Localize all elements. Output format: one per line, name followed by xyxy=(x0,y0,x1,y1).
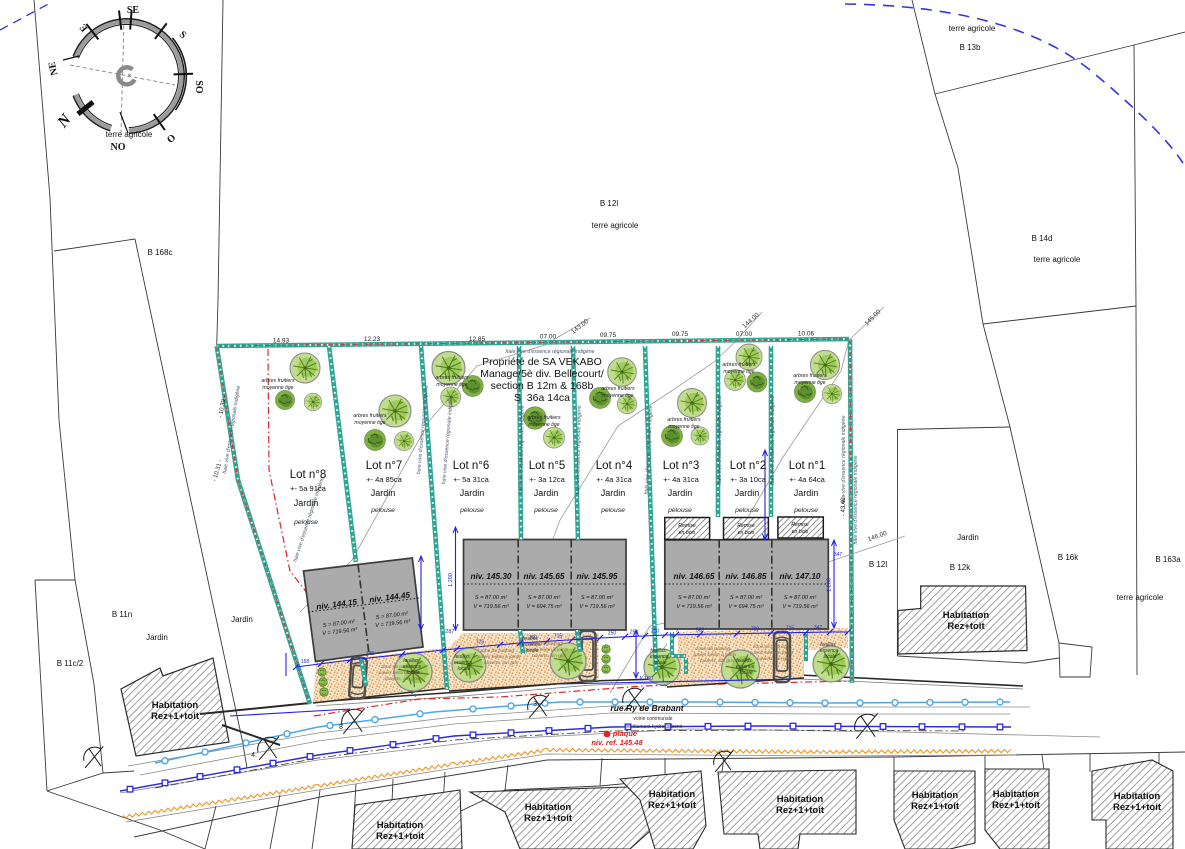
svg-text:S = 87.00 m²: S = 87.00 m² xyxy=(678,595,711,601)
svg-text:1.180: 1.180 xyxy=(639,676,653,682)
svg-text:B 11n: B 11n xyxy=(112,610,132,619)
svg-text:pelouse: pelouse xyxy=(734,507,759,514)
svg-text:V = 694.75 m³: V = 694.75 m³ xyxy=(728,604,763,610)
svg-text:niv. 145.65: niv. 145.65 xyxy=(524,572,565,581)
svg-text:zone de parking: zone de parking xyxy=(752,644,787,650)
svg-text:Jardin: Jardin xyxy=(668,488,693,498)
svg-text:SO: SO xyxy=(193,80,204,94)
svg-text:+- 4a 31ca: +- 4a 31ca xyxy=(596,475,632,484)
svg-text:V = 694.75 m³: V = 694.75 m³ xyxy=(526,604,561,610)
svg-text:Propriété de SA VEKABO: Propriété de SA VEKABO xyxy=(482,356,602,368)
svg-text:580: 580 xyxy=(696,627,705,633)
svg-text:haie vive d'essence régionale: haie vive d'essence régionale indigène xyxy=(717,395,723,484)
svg-text:moyenne tige: moyenne tige xyxy=(436,382,467,388)
svg-text:moyenne tige: moyenne tige xyxy=(723,369,754,375)
svg-text:725: 725 xyxy=(476,640,485,646)
svg-text:Habitation: Habitation xyxy=(912,790,959,801)
svg-text:Lot n°7: Lot n°7 xyxy=(366,460,403,472)
svg-text:Remise: Remise xyxy=(791,522,809,528)
svg-text:Remise: Remise xyxy=(737,523,755,529)
svg-text:arbres fruitiers: arbres fruitiers xyxy=(601,386,635,392)
svg-text:B 16k: B 16k xyxy=(1058,553,1079,562)
svg-text:moyenne tige: moyenne tige xyxy=(354,420,385,426)
svg-text:niv. 146.65: niv. 146.65 xyxy=(674,572,715,581)
svg-text:Habitation: Habitation xyxy=(152,700,199,711)
svg-text:pavés béton à joints: pavés béton à joints xyxy=(750,650,794,656)
svg-text:locale: locale xyxy=(525,648,538,654)
svg-text:arbres fruitiers: arbres fruitiers xyxy=(722,362,756,368)
svg-text:Jardin: Jardin xyxy=(601,488,626,498)
svg-text:Rez+1+toit: Rez+1+toit xyxy=(376,831,425,842)
svg-text:B 13b: B 13b xyxy=(960,43,981,52)
svg-text:pelouse: pelouse xyxy=(600,507,625,514)
svg-text:zone de parking: zone de parking xyxy=(695,646,730,652)
svg-text:Jardin: Jardin xyxy=(371,488,396,498)
svg-text:Lot n°4: Lot n°4 xyxy=(596,460,633,472)
svg-text:Rez+1+toit: Rez+1+toit xyxy=(776,805,825,816)
svg-text:S = 87.00 m²: S = 87.00 m² xyxy=(528,595,561,601)
svg-text:Jardin: Jardin xyxy=(146,633,168,642)
svg-text:S = 87.00 m²: S = 87.00 m² xyxy=(730,595,763,601)
svg-text:plaque: plaque xyxy=(612,729,637,738)
svg-text:moyenne tige: moyenne tige xyxy=(528,422,559,428)
svg-text:S = 87.00 m²: S = 87.00 m² xyxy=(581,595,614,601)
svg-text:B 11c/2: B 11c/2 xyxy=(57,659,84,668)
svg-text:zone de parking: zone de parking xyxy=(479,648,514,654)
svg-text:347: 347 xyxy=(834,552,843,558)
svg-text:niv. 145.95: niv. 145.95 xyxy=(577,572,618,581)
svg-text:arbres fruitiers: arbres fruitiers xyxy=(527,415,561,421)
svg-text:moyenne tige: moyenne tige xyxy=(262,385,293,391)
svg-text:voirie communale: voirie communale xyxy=(633,716,672,722)
svg-text:niv. 146.85: niv. 146.85 xyxy=(726,572,767,581)
svg-text:V = 719.56 m³: V = 719.56 m³ xyxy=(579,604,614,610)
svg-text:Rez+toit: Rez+toit xyxy=(947,621,985,632)
svg-text:700: 700 xyxy=(751,626,760,632)
svg-text:Remise: Remise xyxy=(678,523,696,529)
svg-text:ouverts, ton gris: ouverts, ton gris xyxy=(385,676,420,682)
svg-text:Rez+1+toit: Rez+1+toit xyxy=(524,813,573,824)
svg-text:S 36a 14ca: S 36a 14ca xyxy=(514,392,570,404)
svg-text:haie vive d'essence régionale: haie vive d'essence régionale indigène xyxy=(853,455,859,544)
svg-text:- 43.40 -: - 43.40 - xyxy=(841,494,847,516)
svg-text:arbres fruitiers: arbres fruitiers xyxy=(793,373,827,379)
svg-text:B 14d: B 14d xyxy=(1032,234,1053,243)
svg-text:Jardin: Jardin xyxy=(534,488,559,498)
svg-text:pavés béton à joints: pavés béton à joints xyxy=(693,652,737,658)
svg-text:terre agricole: terre agricole xyxy=(106,130,153,139)
svg-text:12.23: 12.23 xyxy=(364,336,381,343)
svg-text:section B 12m & 168b: section B 12m & 168b xyxy=(491,380,594,392)
svg-text:V = 719.56 m³: V = 719.56 m³ xyxy=(473,604,508,610)
svg-text:en bois: en bois xyxy=(792,529,809,535)
svg-text:pelouse: pelouse xyxy=(667,507,692,514)
svg-text:Jardin: Jardin xyxy=(294,498,319,508)
svg-text:S = 87.00 m²: S = 87.00 m² xyxy=(784,595,817,601)
svg-text:347: 347 xyxy=(814,625,823,631)
svg-text:en bois: en bois xyxy=(738,530,755,536)
svg-text:Lot n°1: Lot n°1 xyxy=(789,460,826,472)
svg-text:280: 280 xyxy=(651,628,660,634)
svg-text:795: 795 xyxy=(366,651,375,657)
svg-text:09.75: 09.75 xyxy=(600,332,617,339)
svg-text:pavés béton à joints: pavés béton à joints xyxy=(477,654,521,660)
svg-text:Lot n°5: Lot n°5 xyxy=(529,460,566,472)
svg-text:Habitation: Habitation xyxy=(649,789,696,800)
svg-text:+- 4a 85ca: +- 4a 85ca xyxy=(366,475,402,484)
svg-text:ouverts, ton gris: ouverts, ton gris xyxy=(757,656,792,662)
svg-text:Jardin: Jardin xyxy=(460,488,485,498)
svg-text:+- 5a 31ca: +- 5a 31ca xyxy=(453,475,489,484)
svg-text:07.00: 07.00 xyxy=(736,331,753,338)
svg-text:1.200: 1.200 xyxy=(448,573,454,587)
svg-text:NO: NO xyxy=(111,142,126,153)
svg-text:ouverts, ton gris: ouverts, ton gris xyxy=(700,658,735,664)
svg-text:+- 5a 91ca: +- 5a 91ca xyxy=(290,484,326,493)
svg-text:8: 8 xyxy=(339,724,343,731)
svg-text:arbres fruitiers: arbres fruitiers xyxy=(261,378,295,384)
svg-text:locale: locale xyxy=(823,654,836,660)
svg-text:Jardin: Jardin xyxy=(794,488,819,498)
svg-text:B 12l: B 12l xyxy=(600,199,618,208)
svg-text:B 12k: B 12k xyxy=(950,563,971,572)
svg-text:10.06: 10.06 xyxy=(798,331,815,338)
svg-text:Lot n°2: Lot n°2 xyxy=(730,460,767,472)
svg-text:pelouse: pelouse xyxy=(533,507,558,514)
svg-text:1.200: 1.200 xyxy=(827,578,833,592)
svg-text:Habitation: Habitation xyxy=(377,820,424,831)
svg-text:B 12l: B 12l xyxy=(869,560,887,569)
svg-text:moyenne tige: moyenne tige xyxy=(602,393,633,399)
svg-text:158: 158 xyxy=(301,659,310,665)
svg-text:Jardin: Jardin xyxy=(735,488,760,498)
svg-text:Rez+1+toit: Rez+1+toit xyxy=(992,800,1041,811)
svg-text:Jardin: Jardin xyxy=(231,615,253,624)
svg-text:Rez+1+toit: Rez+1+toit xyxy=(648,800,697,811)
svg-text:250: 250 xyxy=(608,630,617,636)
svg-text:Manage/5è div. Bellecourt/: Manage/5è div. Bellecourt/ xyxy=(480,368,604,380)
svg-text:Rez+1+toit: Rez+1+toit xyxy=(911,801,960,812)
svg-text:terre agricole: terre agricole xyxy=(592,221,639,230)
svg-text:terre agricole: terre agricole xyxy=(1117,593,1164,602)
svg-text:en bois: en bois xyxy=(679,530,696,536)
svg-text:niv. 147.10: niv. 147.10 xyxy=(780,572,821,581)
svg-text:haie vive d'essence régionale: haie vive d'essence régionale indigène xyxy=(770,395,776,484)
svg-text:V = 719.56 m³: V = 719.56 m³ xyxy=(676,604,711,610)
svg-text:09.75: 09.75 xyxy=(672,331,689,338)
svg-text:arbres fruitiers: arbres fruitiers xyxy=(353,413,387,419)
svg-text:+- 4a 31ca: +- 4a 31ca xyxy=(663,475,699,484)
svg-text:12.85: 12.85 xyxy=(469,336,486,343)
svg-text:S = 87.00 m²: S = 87.00 m² xyxy=(475,595,508,601)
svg-text:Lot n°6: Lot n°6 xyxy=(453,460,490,472)
svg-text:3.: 3. xyxy=(533,701,539,708)
svg-text:+- 3a 10ca: +- 3a 10ca xyxy=(730,475,766,484)
svg-text:4.: 4. xyxy=(251,752,257,759)
svg-text:pelouse: pelouse xyxy=(459,507,484,514)
svg-text:moyenne tige: moyenne tige xyxy=(668,424,699,430)
svg-text:715: 715 xyxy=(554,634,563,640)
svg-text:14.93: 14.93 xyxy=(273,338,290,345)
svg-text:Jardin: Jardin xyxy=(957,533,979,542)
svg-text:B 163a: B 163a xyxy=(1155,555,1181,564)
svg-text:ouverts, ton gris: ouverts, ton gris xyxy=(484,660,519,666)
svg-text:+- 3a 12ca: +- 3a 12ca xyxy=(529,475,565,484)
svg-text:terre agricole: terre agricole xyxy=(949,24,996,33)
svg-text:715: 715 xyxy=(786,626,795,632)
svg-text:pelouse: pelouse xyxy=(793,507,818,514)
svg-text:Habitation: Habitation xyxy=(943,610,990,621)
svg-text:rue Ry de Brabant: rue Ry de Brabant xyxy=(610,703,684,713)
svg-text:287°: 287° xyxy=(445,629,456,635)
svg-text:Habitation: Habitation xyxy=(993,789,1040,800)
svg-text:Habitation: Habitation xyxy=(525,802,572,813)
svg-text:locale: locale xyxy=(739,670,752,676)
svg-text:+- 4a 64ca: +- 4a 64ca xyxy=(789,475,825,484)
svg-text:locale: locale xyxy=(457,666,470,672)
svg-text:Lot n°3: Lot n°3 xyxy=(663,460,700,472)
svg-text:terre agricole: terre agricole xyxy=(1034,255,1081,264)
svg-text:arbres fruitiers: arbres fruitiers xyxy=(667,417,701,423)
svg-text:locale: locale xyxy=(653,660,666,666)
svg-text:Rez+1+toit: Rez+1+toit xyxy=(151,711,200,722)
svg-text:Rez+1+toit: Rez+1+toit xyxy=(1113,802,1162,813)
svg-text:Habitation: Habitation xyxy=(777,794,824,805)
svg-text:V = 719.56 m³: V = 719.56 m³ xyxy=(782,604,817,610)
svg-text:pelouse: pelouse xyxy=(370,507,395,514)
svg-text:Habitation: Habitation xyxy=(1114,791,1161,802)
svg-text:pelouse: pelouse xyxy=(293,519,318,526)
svg-text:niv. ref. 145.48: niv. ref. 145.48 xyxy=(591,738,643,747)
svg-text:niv. 145.30: niv. 145.30 xyxy=(471,572,512,581)
svg-text:Lot n°8: Lot n°8 xyxy=(290,469,327,481)
svg-text:haie vive d'essence régionale: haie vive d'essence régionale indigène xyxy=(841,415,847,504)
svg-text:locale: locale xyxy=(406,670,419,676)
svg-text:07.00: 07.00 xyxy=(540,334,557,341)
svg-text:moyenne tige: moyenne tige xyxy=(794,380,825,386)
svg-text:SE: SE xyxy=(127,5,140,16)
svg-text:haie vive d'essence régionale: haie vive d'essence régionale indigène xyxy=(506,349,595,355)
svg-text:B 168c: B 168c xyxy=(148,248,173,257)
svg-text:arbres fruitiers: arbres fruitiers xyxy=(435,375,469,381)
